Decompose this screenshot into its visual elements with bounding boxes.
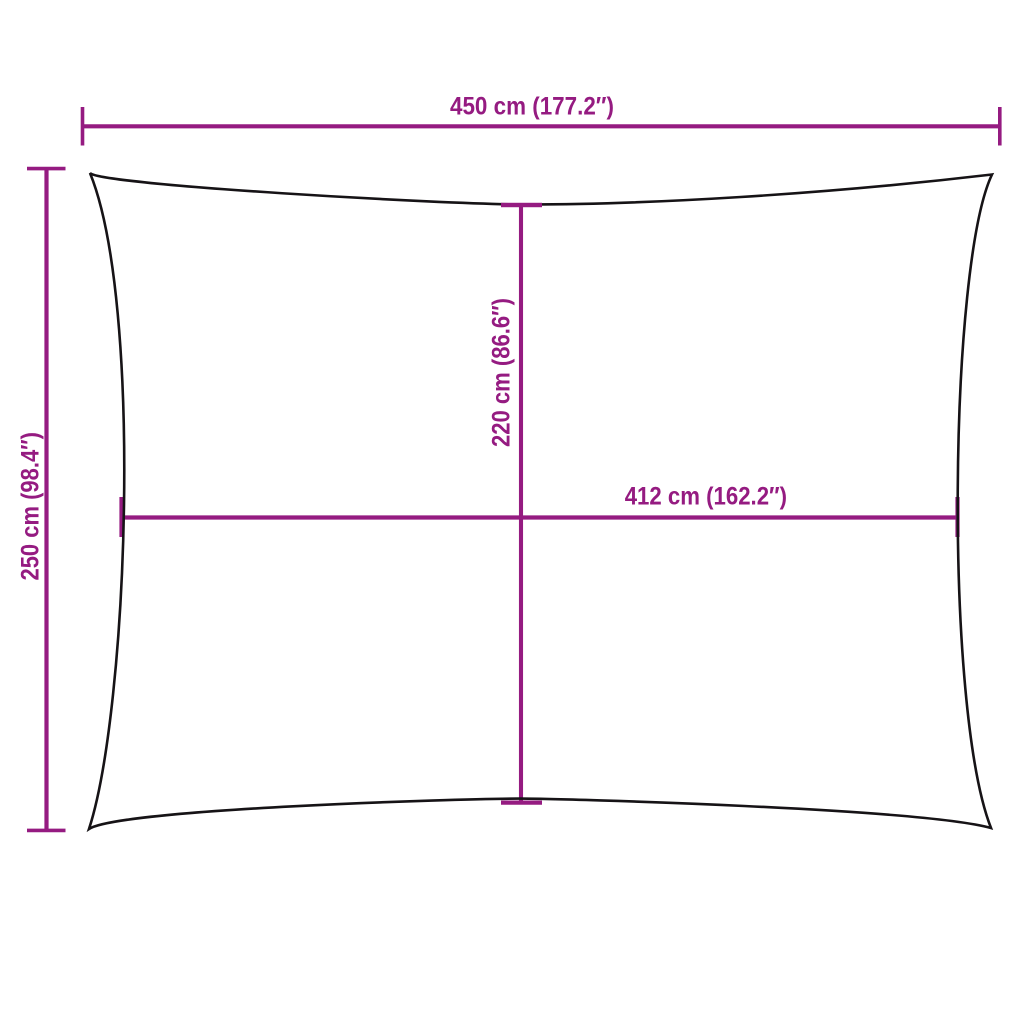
svg-text:412 cm (162.2″): 412 cm (162.2″): [625, 483, 787, 511]
svg-text:450 cm (177.2″): 450 cm (177.2″): [450, 93, 614, 121]
svg-text:250 cm (98.4″): 250 cm (98.4″): [17, 432, 45, 581]
svg-text:220 cm (86.6″): 220 cm (86.6″): [488, 298, 516, 447]
